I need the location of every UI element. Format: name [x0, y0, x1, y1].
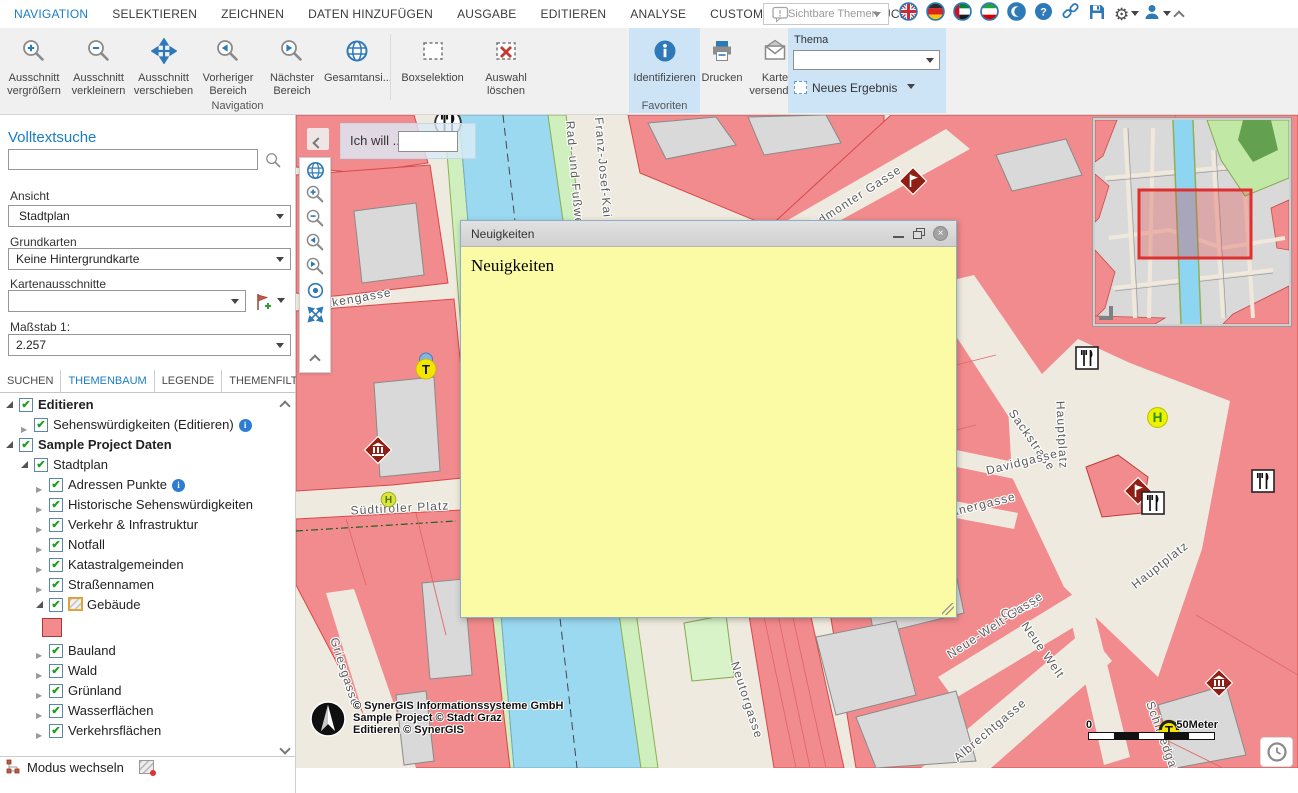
tree-item-verkehrsfl-chen[interactable]: ▶✔Verkehrsflächen — [0, 721, 280, 741]
tool-drucken[interactable]: Drucken — [700, 28, 744, 113]
layer-checkbox[interactable]: ✔ — [49, 558, 63, 572]
tree-item-label[interactable]: Katastralgemeinden — [68, 555, 184, 575]
svg-text:H: H — [1153, 410, 1163, 425]
tool-label: Auswahl löschen — [472, 72, 540, 98]
collapse-up-icon[interactable] — [1175, 4, 1183, 28]
sidebar-panel: Volltextsuche Ansicht Stadtplan Grundkar… — [0, 115, 296, 793]
menu-item-selektieren[interactable]: SELEKTIEREN — [100, 0, 209, 27]
tree-item-label[interactable]: Notfall — [68, 535, 105, 555]
app-window: NAVIGATIONSELEKTIERENZEICHNENDATEN HINZU… — [0, 0, 1298, 793]
chevron-left-icon — [312, 137, 323, 148]
dialog-titlebar[interactable]: Neuigkeiten × — [461, 221, 956, 247]
scale-bar-segments — [1088, 732, 1215, 740]
check-icon: ✔ — [20, 439, 32, 451]
scroll-up-arrow[interactable] — [279, 400, 290, 411]
zoomout-icon — [66, 32, 131, 70]
check-icon: ✔ — [50, 519, 62, 531]
tool-label: Ausschnitt verschieben — [131, 72, 196, 98]
tree-item-label[interactable]: Bauland — [68, 641, 116, 661]
tree-item-label[interactable]: Verkehrsflächen — [68, 721, 161, 741]
boxsel-icon — [393, 32, 472, 70]
massstab-label: Maßstab 1: — [10, 320, 70, 334]
check-icon: ✔ — [50, 579, 62, 591]
layer-swatch-icon — [139, 760, 154, 774]
chevron-down-icon — [873, 12, 881, 21]
layer-checkbox[interactable]: ✔ — [19, 438, 33, 452]
neues-ergebnis-label: Neues Ergebnis — [812, 81, 897, 95]
tree-item-wald[interactable]: ▶✔Wald — [0, 661, 280, 681]
tree-item-editieren[interactable]: ✔Editieren — [0, 395, 280, 415]
sidebar-tabs: SUCHENTHEMENBAUMLEGENDETHEMENFILTER — [0, 370, 296, 393]
save-icon[interactable] — [1088, 3, 1106, 29]
flag-iran-icon[interactable] — [980, 2, 999, 29]
ansicht-select[interactable]: Stadtplan — [8, 205, 291, 227]
ribbon-separator — [390, 34, 391, 100]
prev-icon — [196, 32, 260, 70]
tool-label: Drucken — [700, 72, 744, 85]
map-toolbar — [299, 157, 331, 373]
layer-checkbox[interactable]: ✔ — [49, 498, 63, 512]
ansicht-value: Stadtplan — [16, 209, 70, 223]
layer-checkbox[interactable]: ✔ — [49, 478, 63, 492]
tree-item-label[interactable]: Sample Project Daten — [38, 435, 172, 455]
close-icon[interactable]: × — [933, 226, 948, 241]
poi-stop-h-icon: H — [1146, 406, 1169, 434]
tree-item-bauland[interactable]: ▶✔Bauland — [0, 641, 280, 661]
check-icon: ✔ — [50, 539, 62, 551]
layer-checkbox[interactable]: ✔ — [49, 598, 63, 612]
fulltext-search-input[interactable] — [8, 149, 258, 170]
check-icon: ✔ — [50, 665, 62, 677]
ich-will-box: Ich will ... — [340, 123, 476, 159]
tree-item-historische-sehensw-rdigkeiten[interactable]: ▶✔Historische Sehenswürdigkeiten — [0, 495, 280, 515]
collapse-arrow-icon[interactable] — [36, 601, 43, 608]
link-icon[interactable] — [1061, 2, 1080, 29]
check-icon: ✔ — [50, 725, 62, 737]
check-icon: ✔ — [35, 419, 47, 431]
sidebar-collapse-button[interactable] — [307, 128, 329, 150]
thema-select[interactable] — [793, 50, 940, 70]
flag-germany-icon[interactable] — [926, 2, 945, 29]
tree-item-verkehr-infrastruktur[interactable]: ▶✔Verkehr & Infrastruktur — [0, 515, 280, 535]
layer-checkbox[interactable]: ✔ — [19, 398, 33, 412]
tree-item-wasserfl-chen[interactable]: ▶✔Wasserflächen — [0, 701, 280, 721]
gear-icon[interactable]: ⚙ — [1114, 3, 1129, 28]
clock-button[interactable] — [1260, 737, 1293, 767]
tree-item-label[interactable]: Stadtplan — [53, 455, 108, 475]
ich-will-label: Ich will ... — [350, 133, 403, 148]
copyright-line: Sample Project © Stadt Graz — [353, 712, 563, 724]
chevron-down-icon — [1163, 11, 1171, 20]
tool-label: Identifizieren — [629, 72, 700, 85]
overview-map[interactable] — [1093, 118, 1291, 326]
pan-icon — [131, 32, 196, 70]
scale-end-label: 50Meter — [1176, 719, 1218, 731]
poi-diamond-flag-icon — [898, 166, 928, 201]
svg-text:T: T — [422, 362, 430, 377]
tree-item-gr-nland[interactable]: ▶✔Grünland — [0, 681, 280, 701]
tree-item-adressen-punkte[interactable]: ▶✔Adressen Punktei — [0, 475, 280, 495]
layer-checkbox[interactable]: ✔ — [49, 644, 63, 658]
layer-tree: ✔Editieren▶✔Sehenswürdigkeiten (Editiere… — [0, 395, 280, 747]
poi-tram-t-icon: T — [413, 351, 439, 386]
map-toolbar-collapse-icon[interactable] — [300, 346, 330, 370]
flag-uk-icon[interactable] — [899, 2, 918, 29]
grundkarten-select[interactable]: Keine Hintergrundkarte — [8, 248, 291, 270]
chevron-down-icon — [1131, 11, 1139, 20]
map-tool-zoomin-icon[interactable] — [300, 182, 330, 206]
kartenausschnitte-label: Kartenausschnitte — [10, 277, 106, 291]
print-icon — [700, 32, 744, 70]
clearsel-icon — [472, 32, 540, 70]
massstab-value: 2.257 — [16, 338, 46, 352]
visible-themes-label: Sichtbare Themen — [788, 8, 878, 20]
chevron-down-icon — [276, 343, 284, 352]
map-tool-prev-icon[interactable] — [300, 230, 330, 254]
poi-diamond-museum-icon — [363, 435, 393, 470]
modus-label: Modus wechseln — [27, 760, 124, 775]
tree-item-stadtplan[interactable]: ✔Stadtplan — [0, 455, 280, 475]
poi-diamond-museum-icon — [1204, 668, 1234, 703]
tree-item-geb-ude[interactable]: ✔Gebäude — [0, 595, 280, 615]
check-icon: ✔ — [50, 685, 62, 697]
menu-bar: NAVIGATIONSELEKTIERENZEICHNENDATEN HINZU… — [0, 0, 1298, 28]
chevron-down-icon[interactable] — [277, 298, 285, 307]
check-icon: ✔ — [50, 479, 62, 491]
menu-item-zeichnen[interactable]: ZEICHNEN — [209, 0, 296, 27]
map-copyright: © SynerGIS Informationssysteme GmbHSampl… — [353, 700, 563, 736]
tree-item-notfall[interactable]: ▶✔Notfall — [0, 535, 280, 555]
maximize-button[interactable] — [913, 228, 925, 239]
chevron-down-icon — [276, 214, 284, 223]
tree-item-label[interactable]: Adressen Punktei — [68, 475, 185, 495]
kartenausschnitte-select[interactable] — [8, 290, 246, 312]
menu-item-daten-hinzuf-gen[interactable]: DATEN HINZUFÜGEN — [296, 0, 445, 27]
chevron-down-icon — [276, 257, 284, 266]
user-icon[interactable] — [1143, 3, 1161, 29]
dialog-title: Neuigkeiten — [471, 227, 534, 241]
north-arrow-icon — [310, 701, 346, 742]
layer-checkbox[interactable]: ✔ — [34, 458, 48, 472]
tool-label: Ausschnitt verkleinern — [66, 72, 131, 98]
tree-item-sehensw-rdigkeiten-editieren[interactable]: ▶✔Sehenswürdigkeiten (Editieren)i — [0, 415, 280, 435]
tree-item-label[interactable]: Sehenswürdigkeiten (Editieren)i — [53, 415, 252, 435]
tree-item-katastralgemeinden[interactable]: ▶✔Katastralgemeinden — [0, 555, 280, 575]
search-icon[interactable] — [264, 151, 282, 174]
tool-auswahl-l-schen[interactable]: Auswahl löschen — [472, 28, 540, 113]
layer-checkbox[interactable]: ✔ — [49, 684, 63, 698]
layer-checkbox[interactable]: ✔ — [49, 518, 63, 532]
ribbon-group-favoriten: Favoriten — [629, 100, 700, 112]
tab-themenbaum[interactable]: THEMENBAUM — [61, 370, 154, 393]
tree-item-label[interactable]: Historische Sehenswürdigkeiten — [68, 495, 253, 515]
dialog-body: Neuigkeiten — [461, 248, 956, 617]
map-viewport[interactable]: Rad- und Fußweg-Franz-Josef-KaiAdmonter … — [296, 115, 1298, 768]
tree-item-label[interactable]: Editieren — [38, 395, 94, 415]
overview-extent-rect — [1139, 190, 1251, 258]
chevron-down-icon — [907, 84, 915, 93]
menu-item-analyse[interactable]: ANALYSE — [618, 0, 698, 27]
neues-ergebnis-button[interactable]: Neues Ergebnis — [794, 81, 915, 95]
menu-item-navigation[interactable]: NAVIGATION — [2, 0, 100, 27]
poi-hotel-h-icon: H — [380, 491, 397, 513]
tree-item-label[interactable]: Wald — [68, 661, 97, 681]
ansicht-label: Ansicht — [10, 189, 49, 203]
tab-legende[interactable]: LEGENDE — [155, 370, 223, 393]
legend-swatch-gebaeude — [0, 615, 280, 641]
neuigkeiten-dialog: Neuigkeiten × Neuigkeiten — [460, 220, 957, 618]
collapse-arrow-icon[interactable] — [21, 461, 28, 468]
collapse-arrow-icon[interactable] — [6, 441, 13, 448]
map-tool-locate-icon[interactable] — [300, 278, 330, 302]
modus-tree-icon — [6, 762, 21, 777]
map-tool-next-icon[interactable] — [300, 254, 330, 278]
menu-item-editieren[interactable]: EDITIEREN — [528, 0, 618, 27]
flag-crescent-icon[interactable] — [1007, 2, 1026, 29]
thema-label: Thema — [794, 34, 828, 46]
layer-edit-icon — [68, 597, 83, 611]
dialog-body-text: Neuigkeiten — [471, 256, 554, 276]
tree-item-label[interactable]: Grünland — [68, 681, 121, 701]
poi-restaurant-icon — [1075, 346, 1099, 375]
check-icon: ✔ — [50, 705, 62, 717]
map-tool-globe-icon[interactable] — [300, 158, 330, 182]
layer-checkbox[interactable]: ✔ — [49, 704, 63, 718]
tool-ausschnitt-vergr-ern[interactable]: Ausschnitt vergrößern — [2, 28, 66, 113]
poi-restaurant-icon — [1251, 469, 1275, 498]
tool-label: Ausschnitt vergrößern — [2, 72, 66, 98]
visible-themes-dropdown[interactable]: Sichtbare Themen — [763, 3, 889, 25]
info-icon[interactable]: i — [172, 479, 185, 492]
ribbon-toolbar: Ausschnitt vergrößernAusschnitt verklein… — [0, 28, 1298, 115]
ribbon-group-navigation: Navigation — [60, 100, 415, 112]
tool-label: Nächster Bereich — [260, 72, 324, 98]
layer-checkbox[interactable]: ✔ — [34, 418, 48, 432]
tool-label: Vorheriger Bereich — [196, 72, 260, 98]
next-icon — [260, 32, 324, 70]
copyright-line: © SynerGIS Informationssysteme GmbH — [353, 700, 563, 712]
minimize-button[interactable] — [893, 229, 904, 238]
collapse-arrow-icon[interactable] — [6, 401, 13, 408]
fulltext-search-link[interactable]: Volltextsuche — [8, 129, 96, 146]
gebaeude-color-swatch — [42, 618, 62, 637]
chevron-down-icon — [926, 58, 934, 67]
tree-item-label[interactable]: Verkehr & Infrastruktur — [68, 515, 198, 535]
add-bookmark-icon[interactable] — [253, 292, 273, 317]
scale-start-label: 0 — [1086, 719, 1092, 731]
check-icon: ✔ — [50, 499, 62, 511]
check-icon: ✔ — [20, 399, 32, 411]
check-icon: ✔ — [50, 559, 62, 571]
tree-item-label[interactable]: Straßennamen — [68, 575, 154, 595]
tree-item-stra-ennamen[interactable]: ▶✔Straßennamen — [0, 575, 280, 595]
svg-text:H: H — [385, 495, 392, 506]
tool-label: Boxselektion — [393, 72, 472, 85]
tab-suchen[interactable]: SUCHEN — [0, 370, 61, 393]
selection-box-icon — [794, 81, 807, 94]
info-icon[interactable]: i — [239, 419, 252, 432]
check-icon: ✔ — [35, 459, 47, 471]
scroll-down-arrow[interactable] — [279, 743, 290, 754]
poi-restaurant-icon — [1141, 491, 1165, 520]
map-tool-extent-icon[interactable] — [300, 302, 330, 326]
grundkarten-value: Keine Hintergrundkarte — [16, 252, 139, 266]
copyright-line: Editieren © SynerGIS — [353, 724, 563, 736]
tree-item-sample-project-daten[interactable]: ✔Sample Project Daten — [0, 435, 280, 455]
massstab-select[interactable]: 2.257 — [8, 334, 291, 356]
layer-checkbox[interactable]: ✔ — [49, 578, 63, 592]
map-tool-zoomout-icon[interactable] — [300, 206, 330, 230]
grundkarten-label: Grundkarten — [10, 235, 77, 249]
thema-panel: Thema Neues Ergebnis — [788, 28, 946, 113]
svg-text:?: ? — [1040, 7, 1047, 19]
zoomin-icon — [2, 32, 66, 70]
ich-will-input[interactable] — [398, 131, 458, 152]
chevron-down-icon — [231, 299, 239, 308]
resize-handle[interactable] — [942, 603, 954, 615]
layer-checkbox[interactable]: ✔ — [49, 664, 63, 678]
expand-arrow-icon[interactable]: ▶ — [36, 726, 42, 746]
identify-icon — [629, 32, 700, 70]
tool-label: Gesamtansi... — [324, 72, 390, 85]
tree-item-label[interactable]: Wasserflächen — [68, 701, 154, 721]
help-icon[interactable]: ? — [1034, 2, 1053, 29]
layer-checkbox[interactable]: ✔ — [49, 538, 63, 552]
globe-icon — [324, 32, 390, 70]
modus-wechseln-button[interactable]: Modus wechseln — [0, 756, 296, 778]
check-icon: ✔ — [50, 645, 62, 657]
menu-item-ausgabe[interactable]: AUSGABE — [445, 0, 528, 27]
tree-item-label[interactable]: Gebäude — [68, 595, 141, 615]
check-icon: ✔ — [50, 599, 62, 611]
topbar-icons: ?⚙ — [895, 2, 1187, 26]
flag-uae-icon[interactable] — [953, 2, 972, 29]
layer-checkbox[interactable]: ✔ — [49, 724, 63, 738]
